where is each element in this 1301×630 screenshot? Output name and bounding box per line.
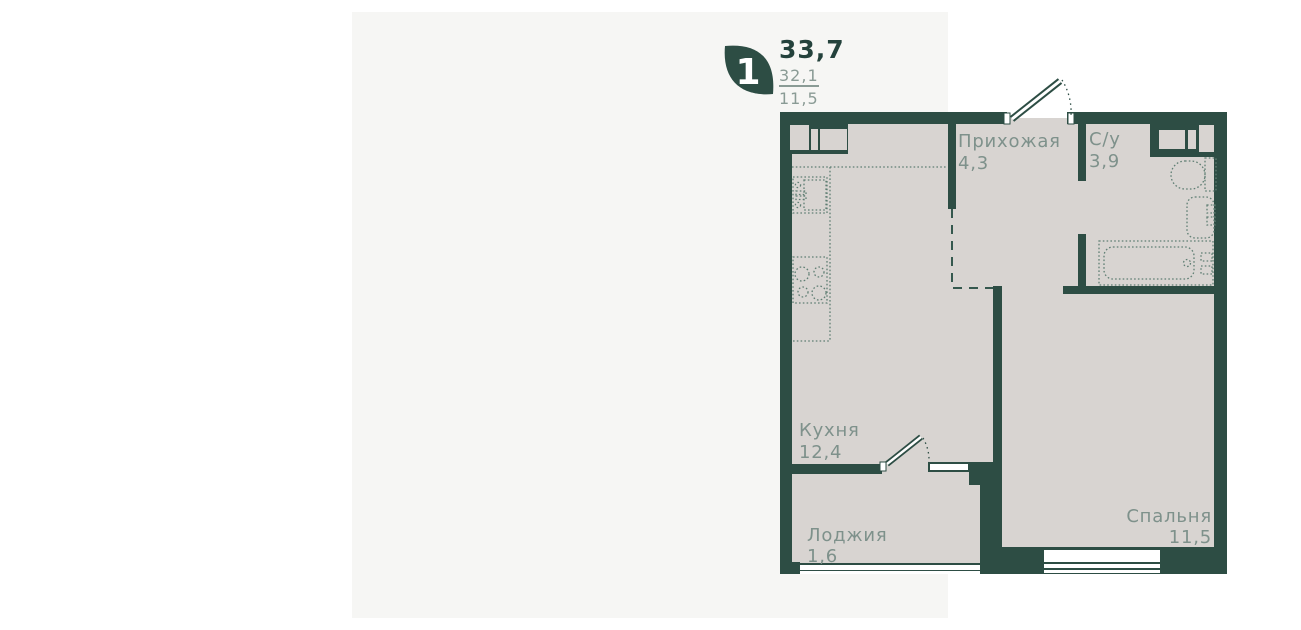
hallway-area: 4,3 (958, 153, 989, 174)
shaft-block-top-right (1150, 124, 1214, 157)
entrance-door-icon (1004, 80, 1074, 124)
page: 1 33,7 32,1 11,5 (0, 0, 1301, 630)
bedroom-label: Спальня (1126, 506, 1212, 527)
apartment-floor (786, 118, 1220, 568)
loggia-area: 1,6 (807, 546, 838, 567)
bedroom-window (1044, 547, 1160, 574)
bedroom-area: 11,5 (1169, 527, 1212, 548)
bathroom-label: С/у (1089, 129, 1121, 150)
shaft-block-top-left (780, 112, 848, 154)
floorplan-card[interactable]: 1 33,7 32,1 11,5 (352, 12, 948, 618)
kitchen-label: Кухня (799, 420, 860, 441)
hallway-label: Прихожая (958, 131, 1061, 152)
bathroom-area: 3,9 (1089, 151, 1120, 172)
kitchen-area: 12,4 (799, 442, 842, 463)
kitchen-window (928, 462, 970, 472)
floor-plan: Прихожая 4,3 С/у 3,9 Кухня 12,4 Лоджия 1… (704, 24, 1300, 630)
loggia-label: Лоджия (807, 525, 888, 546)
